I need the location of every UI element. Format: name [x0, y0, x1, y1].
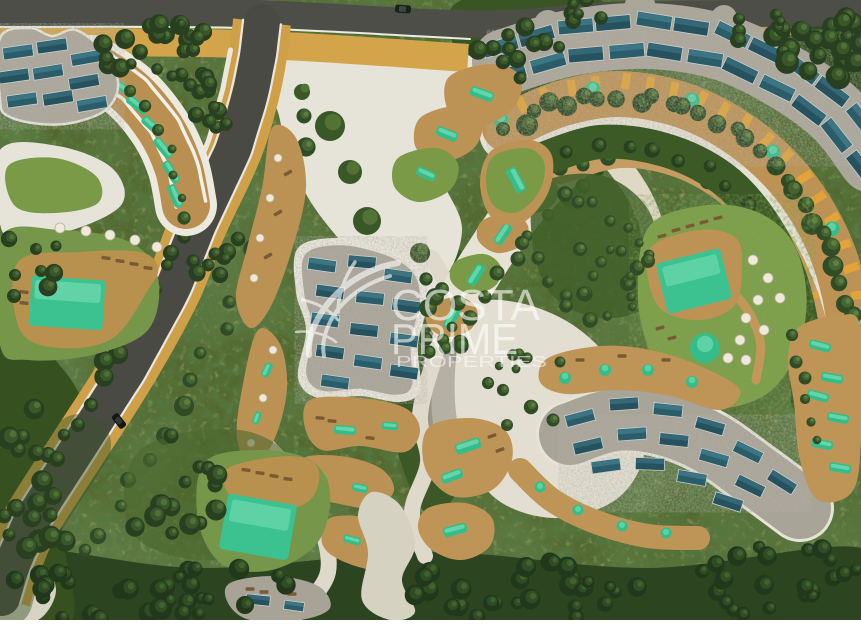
svg-text:PROPERTIES: PROPERTIES: [396, 354, 547, 371]
